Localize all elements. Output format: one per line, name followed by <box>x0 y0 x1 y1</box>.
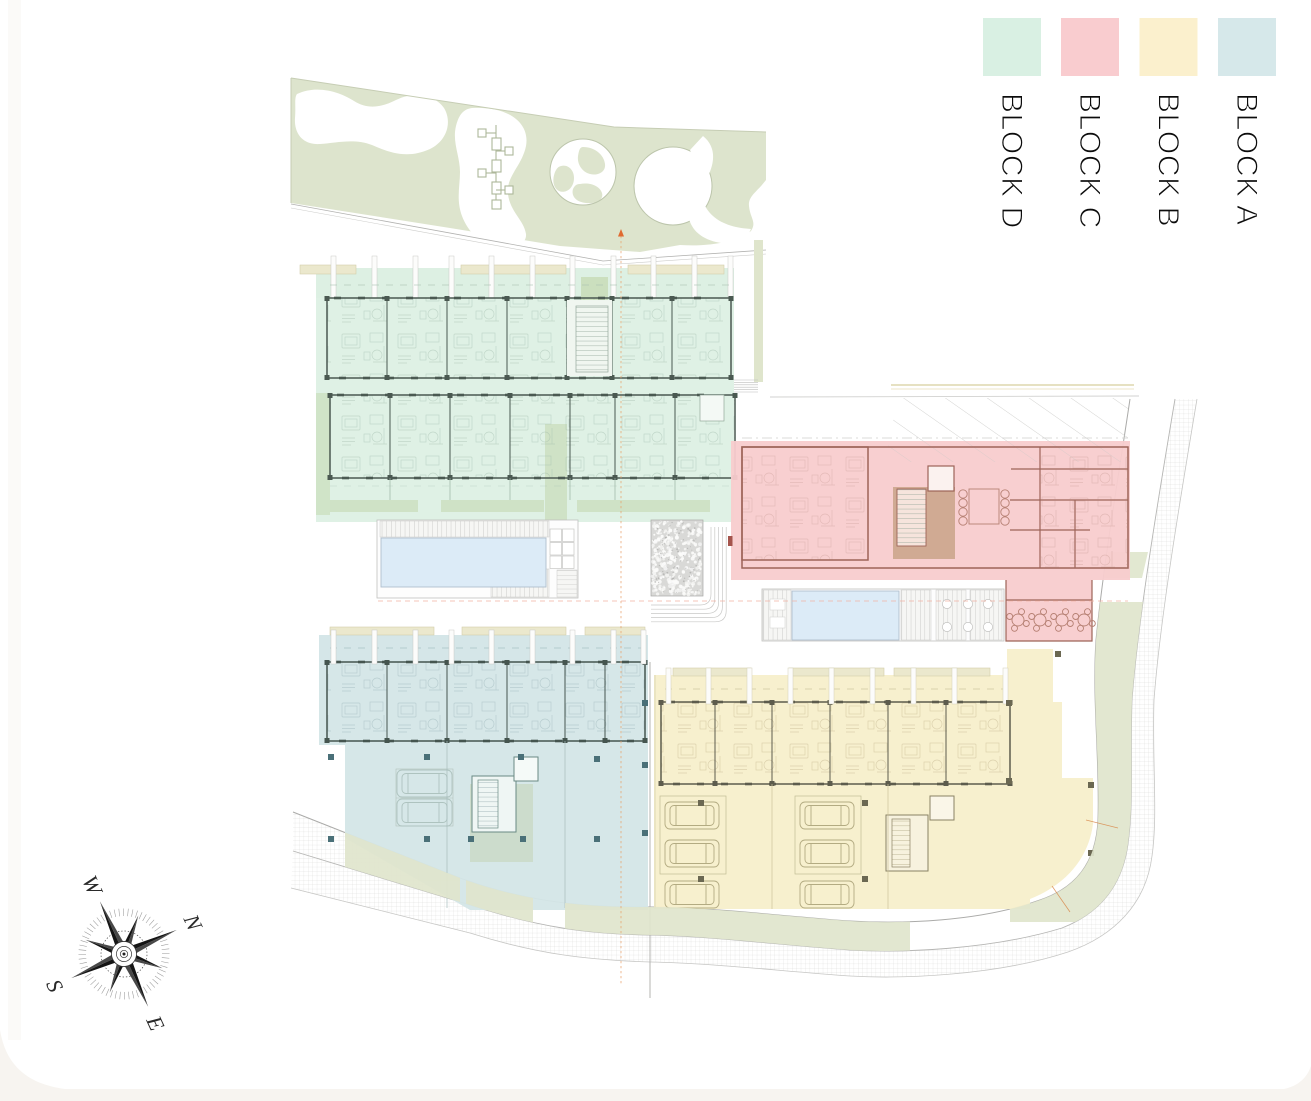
svg-text:BLOCK D: BLOCK D <box>995 93 1028 229</box>
svg-text:BLOCK A: BLOCK A <box>1230 93 1263 226</box>
svg-text:BLOCK C: BLOCK C <box>1073 93 1106 229</box>
svg-text:BLOCK B: BLOCK B <box>1152 93 1185 227</box>
